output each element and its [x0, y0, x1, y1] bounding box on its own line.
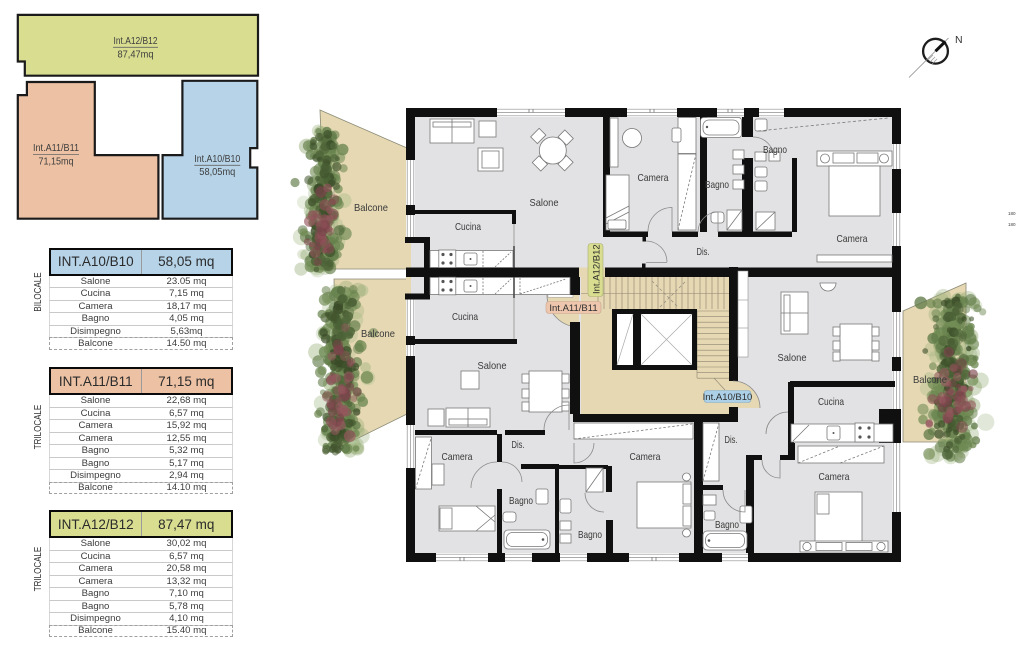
- svg-text:Bagno: Bagno: [763, 144, 787, 156]
- svg-text:180: 180: [1008, 211, 1016, 216]
- svg-text:Bagno: Bagno: [509, 495, 533, 507]
- svg-text:Dis.: Dis.: [697, 246, 710, 258]
- svg-text:Bagno: Bagno: [578, 529, 602, 541]
- svg-text:Dis.: Dis.: [725, 434, 738, 446]
- svg-text:71,15mq: 71,15mq: [39, 156, 74, 168]
- svg-text:Salone: Salone: [530, 197, 559, 209]
- svg-text:Camera: Camera: [638, 172, 669, 184]
- svg-text:Int.A10/B10: Int.A10/B10: [703, 392, 753, 403]
- svg-text:Int.A10/B10: Int.A10/B10: [194, 153, 240, 165]
- svg-text:87,47mq: 87,47mq: [118, 49, 154, 61]
- svg-text:Int.A11/B11: Int.A11/B11: [33, 142, 79, 154]
- svg-text:Camera: Camera: [630, 451, 661, 463]
- svg-text:Camera: Camera: [442, 451, 473, 463]
- svg-text:Camera: Camera: [837, 233, 868, 245]
- svg-text:Camera: Camera: [819, 471, 850, 483]
- svg-text:Cucina: Cucina: [818, 396, 844, 408]
- svg-text:Int.A12/B12: Int.A12/B12: [592, 244, 603, 294]
- svg-text:Int.A12/B12: Int.A12/B12: [114, 35, 158, 47]
- svg-text:Balcone: Balcone: [361, 328, 395, 340]
- svg-text:Dis.: Dis.: [512, 439, 525, 451]
- svg-text:58,05mq: 58,05mq: [199, 166, 235, 178]
- svg-text:Salone: Salone: [478, 360, 507, 372]
- svg-text:Cucina: Cucina: [455, 221, 481, 233]
- svg-text:Int.A11/B11: Int.A11/B11: [549, 303, 597, 314]
- svg-text:Cucina: Cucina: [452, 311, 478, 323]
- svg-text:Bagno: Bagno: [715, 519, 739, 531]
- svg-text:Salone: Salone: [778, 352, 807, 364]
- svg-text:180: 180: [1008, 222, 1016, 227]
- svg-text:Balcone: Balcone: [913, 374, 947, 386]
- svg-text:N: N: [955, 34, 963, 46]
- svg-text:Bagno: Bagno: [705, 179, 729, 191]
- svg-text:Balcone: Balcone: [354, 202, 388, 214]
